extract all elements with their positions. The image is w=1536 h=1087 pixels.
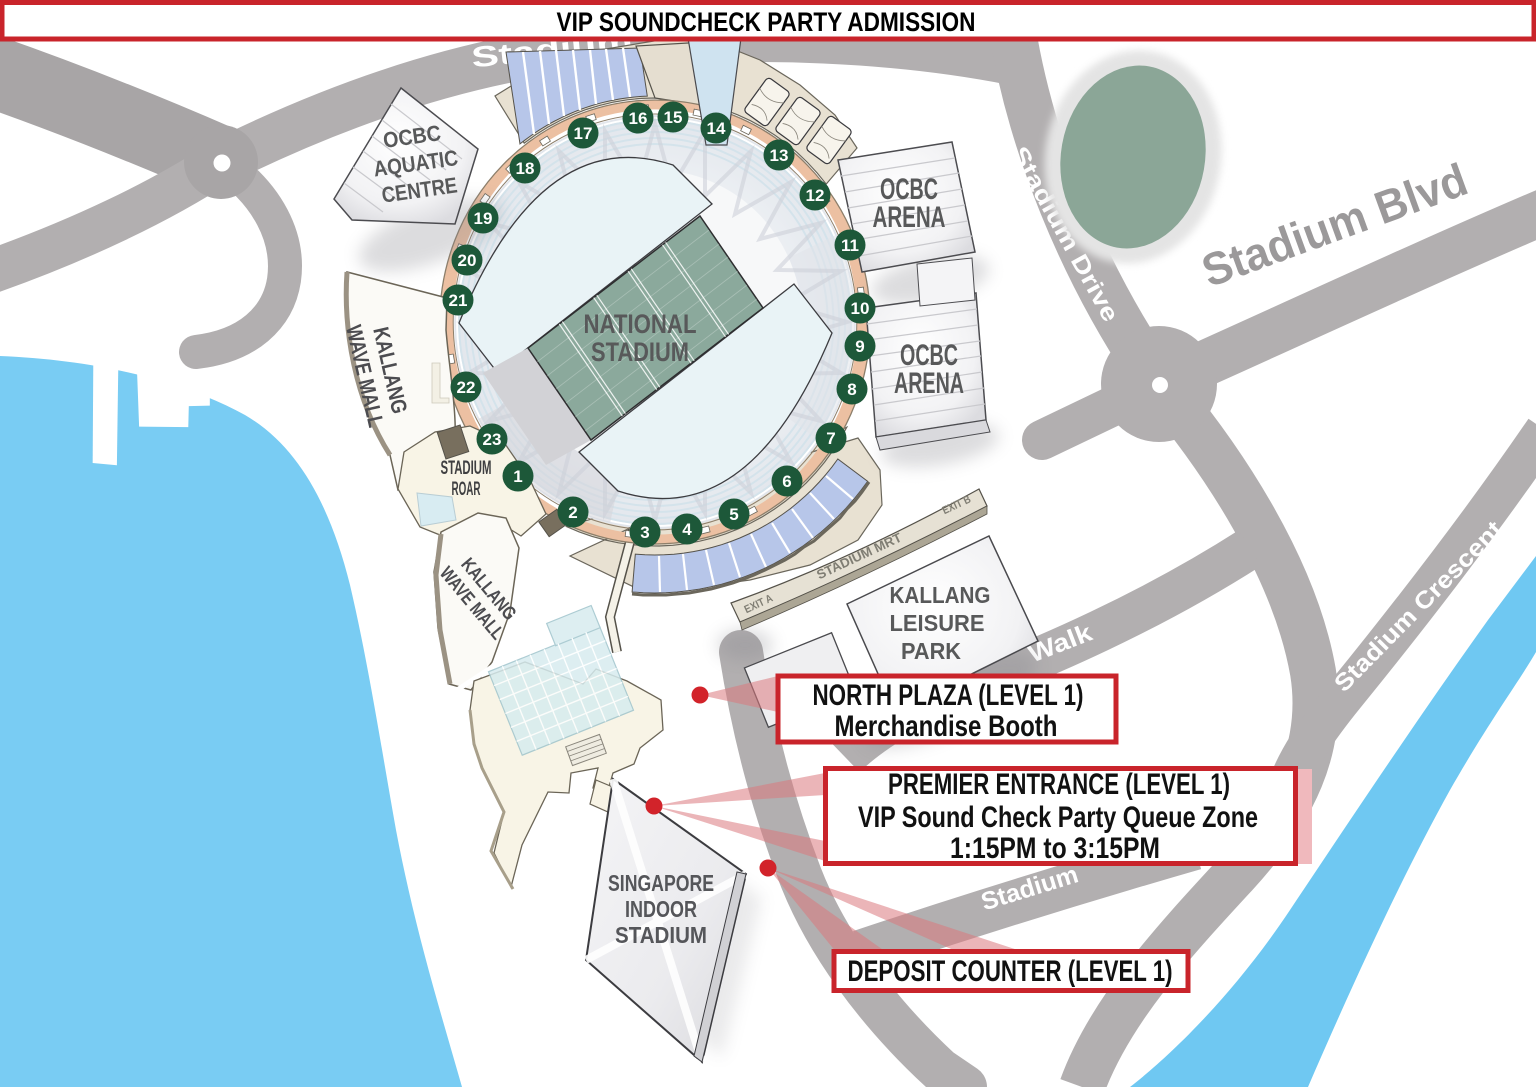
svg-text:18: 18 [516, 159, 535, 178]
svg-text:8: 8 [847, 380, 856, 399]
svg-text:20: 20 [458, 251, 477, 270]
svg-text:12: 12 [806, 186, 825, 205]
svg-text:STADIUM: STADIUM [441, 458, 492, 479]
svg-text:PREMIER ENTRANCE (LEVEL 1): PREMIER ENTRANCE (LEVEL 1) [888, 768, 1230, 801]
svg-text:ARENA: ARENA [894, 367, 964, 400]
svg-text:15: 15 [664, 108, 683, 127]
svg-text:KALLANG: KALLANG [890, 582, 991, 608]
svg-text:21: 21 [449, 291, 468, 310]
svg-text:VIP SOUNDCHECK PARTY ADMISSION: VIP SOUNDCHECK PARTY ADMISSION [557, 7, 976, 37]
svg-text:STADIUM: STADIUM [591, 337, 689, 367]
svg-text:2: 2 [568, 503, 577, 522]
svg-text:23: 23 [483, 430, 502, 449]
svg-text:13: 13 [770, 146, 789, 165]
svg-text:INDOOR: INDOOR [625, 896, 697, 922]
svg-text:VIP Sound Check Party Queue Zo: VIP Sound Check Party Queue Zone [858, 801, 1258, 834]
svg-text:NORTH PLAZA (LEVEL 1): NORTH PLAZA (LEVEL 1) [813, 679, 1084, 712]
svg-text:19: 19 [474, 209, 493, 228]
svg-text:1: 1 [513, 467, 522, 486]
svg-text:Merchandise Booth: Merchandise Booth [835, 710, 1058, 743]
svg-text:STADIUM: STADIUM [615, 922, 707, 948]
svg-text:9: 9 [855, 337, 864, 356]
svg-text:17: 17 [574, 124, 593, 143]
svg-text:10: 10 [851, 299, 870, 318]
svg-text:16: 16 [629, 109, 648, 128]
svg-text:5: 5 [729, 505, 738, 524]
svg-text:22: 22 [457, 378, 476, 397]
svg-text:6: 6 [782, 472, 791, 491]
svg-text:LEISURE: LEISURE [890, 610, 985, 636]
svg-text:SINGAPORE: SINGAPORE [608, 870, 714, 896]
svg-text:14: 14 [707, 119, 726, 138]
svg-text:ROAR: ROAR [452, 479, 481, 500]
svg-text:7: 7 [826, 429, 835, 448]
svg-text:PARK: PARK [901, 638, 961, 664]
svg-text:1:15PM to 3:15PM: 1:15PM to 3:15PM [950, 832, 1160, 865]
svg-text:11: 11 [841, 236, 859, 255]
svg-text:ARENA: ARENA [873, 201, 946, 234]
svg-text:NATIONAL: NATIONAL [584, 309, 697, 339]
svg-text:DEPOSIT COUNTER (LEVEL 1): DEPOSIT COUNTER (LEVEL 1) [848, 955, 1173, 988]
svg-text:4: 4 [682, 520, 692, 539]
svg-text:3: 3 [640, 523, 649, 542]
